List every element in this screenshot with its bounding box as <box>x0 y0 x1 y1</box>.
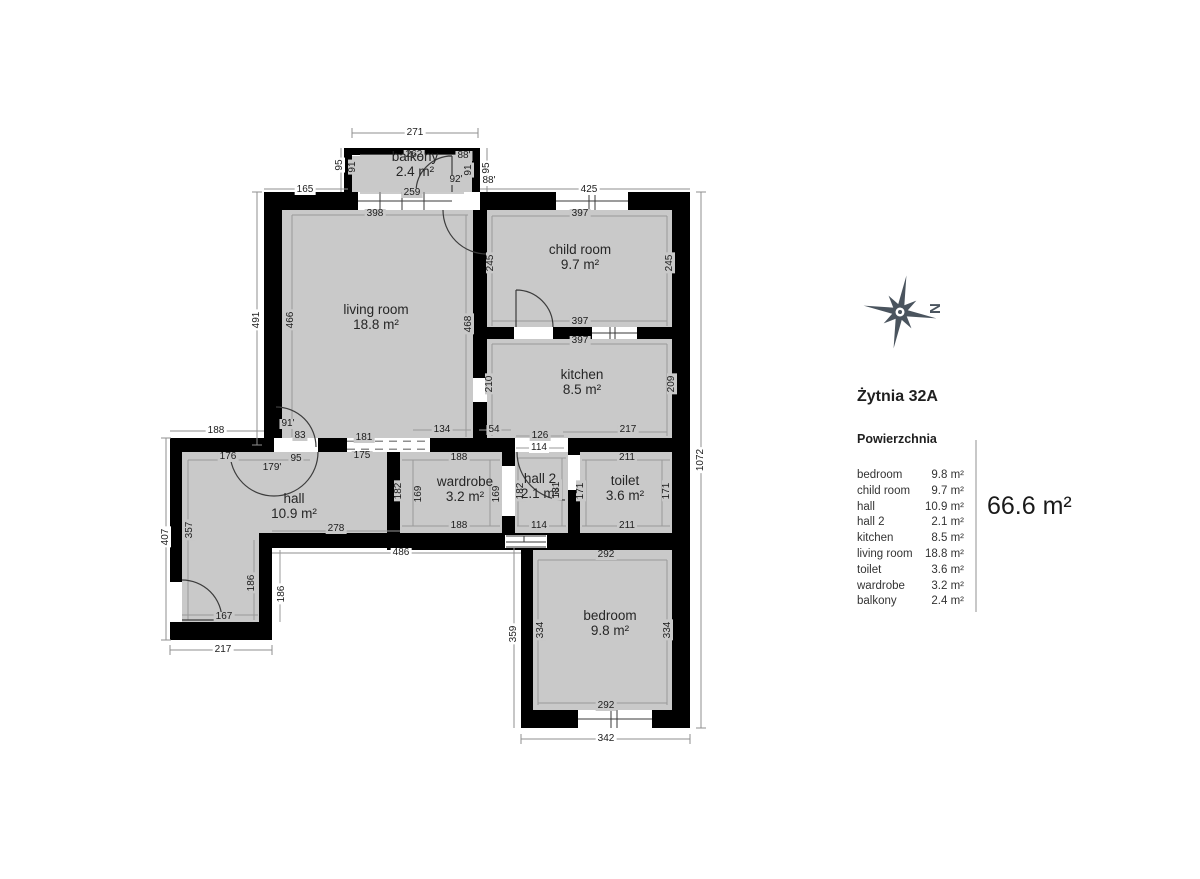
room-label: living room18.8 m² <box>343 302 408 332</box>
dimension-label: 95 <box>288 454 303 464</box>
room-area: 2.1 m² <box>521 486 559 501</box>
dimension-label: 171 <box>576 481 586 502</box>
room-name: hall 2 <box>521 471 559 486</box>
room-name: toilet <box>606 473 644 488</box>
plan-title: Żytnia 32A <box>857 388 938 406</box>
dimension-label: 95 <box>335 157 345 172</box>
legend-room-name: hall <box>857 502 875 514</box>
legend-room-name: hall 2 <box>857 517 885 529</box>
room-name: kitchen <box>561 367 604 382</box>
dimension-label: 114 <box>529 443 549 453</box>
dimension-label: 211 <box>617 521 637 531</box>
room-label: balkony2.4 m² <box>392 149 439 179</box>
door-gap-balcony <box>452 192 480 210</box>
dimension-label: 188 <box>449 453 470 463</box>
dimension-label: 278 <box>326 524 347 534</box>
legend-room-area: 18.8 m² <box>925 549 964 561</box>
room-name: child room <box>549 242 611 257</box>
legend-room-name: wardrobe <box>857 581 905 593</box>
dimension-label: 217 <box>213 645 234 655</box>
legend-divider <box>975 440 977 612</box>
legend-room-name: balkony <box>857 596 897 608</box>
dimension-label: 176 <box>218 452 239 462</box>
legend-row: hall10.9 m² <box>857 502 964 514</box>
dimension-label: 486 <box>391 548 412 558</box>
room-label: hall 22.1 m² <box>521 471 559 501</box>
room-area: 3.2 m² <box>437 489 493 504</box>
dimension-label: 114 <box>529 521 549 531</box>
dimension-label: 359 <box>509 624 519 645</box>
legend-room-area: 10.9 m² <box>925 502 964 514</box>
legend-room-name: living room <box>857 549 913 561</box>
dimension-label: 126 <box>530 431 551 441</box>
room-label: toilet3.6 m² <box>606 473 644 503</box>
legend-room-area: 2.4 m² <box>931 596 964 608</box>
dimension-label: 134 <box>432 425 453 435</box>
room-area: 18.8 m² <box>343 317 408 332</box>
total-area: 66.6 m² <box>987 492 1072 521</box>
dimension-label: 259 <box>402 188 423 198</box>
dimension-label: 468 <box>464 314 474 335</box>
room-name: wardrobe <box>437 474 493 489</box>
legend-row: living room18.8 m² <box>857 549 964 561</box>
dimension-label: 186 <box>247 573 257 594</box>
dimension-label: 292 <box>596 701 617 711</box>
dimension-label: 88' <box>455 151 472 161</box>
door-gap-child <box>514 327 553 339</box>
dimension-label: 175 <box>352 451 373 461</box>
legend-row: toilet3.6 m² <box>857 565 964 577</box>
room-area: 3.6 m² <box>606 488 644 503</box>
dimension-label: 398 <box>365 209 386 219</box>
door-gap-hall-entry <box>170 582 182 622</box>
dimension-label: 188 <box>449 521 470 531</box>
dimension-label: 271 <box>405 128 426 138</box>
dimension-label: 245 <box>486 253 496 274</box>
dimension-label: 182 <box>394 481 404 502</box>
dimension-label: 211 <box>617 453 637 463</box>
dimension-label: 466 <box>286 310 296 331</box>
legend-room-name: toilet <box>857 565 881 577</box>
dimension-label: 342 <box>596 734 617 744</box>
legend-room-area: 3.6 m² <box>931 565 964 577</box>
legend-room-name: bedroom <box>857 470 902 482</box>
room-label: wardrobe3.2 m² <box>437 474 493 504</box>
dimension-label: 88' <box>480 176 497 186</box>
legend-row: balkony2.4 m² <box>857 596 964 608</box>
dimension-label: 334 <box>536 620 546 641</box>
dimension-label: 91 <box>464 162 474 177</box>
dimension-label: 209 <box>667 374 677 395</box>
dimension-label: 292 <box>596 550 617 560</box>
dimension-label: 169 <box>492 484 502 505</box>
dimension-label: 1072 <box>696 447 706 473</box>
dimension-label: 91 <box>348 159 358 174</box>
door-gap-wardrobe <box>502 466 515 516</box>
dimension-label: 245 <box>665 253 675 274</box>
dimension-label: 397 <box>570 317 591 327</box>
legend-row: kitchen8.5 m² <box>857 533 964 545</box>
legend-row: wardrobe3.2 m² <box>857 581 964 593</box>
legend-room-area: 9.8 m² <box>931 470 964 482</box>
legend-row: hall 22.1 m² <box>857 517 964 529</box>
dimension-label: 334 <box>663 620 673 641</box>
dimension-label: 167 <box>214 612 235 622</box>
dimension-label: 181 <box>354 433 375 443</box>
dimension-label: 425 <box>579 185 600 195</box>
room-name: hall <box>271 491 317 506</box>
dimension-label: 169 <box>414 484 424 505</box>
legend-room-area: 9.7 m² <box>931 486 964 498</box>
dimension-label: 83 <box>292 431 307 441</box>
dimension-label: 397 <box>570 209 591 219</box>
dimension-label: 210 <box>485 374 495 395</box>
dimension-label: 188 <box>206 426 227 436</box>
legend-room-name: child room <box>857 486 910 498</box>
room-area: 8.5 m² <box>561 382 604 397</box>
room-name: balkony <box>392 149 439 164</box>
dimension-label: 92' <box>447 175 464 185</box>
legend-row: bedroom9.8 m² <box>857 470 964 482</box>
room-name: living room <box>343 302 408 317</box>
dimension-label: 95 <box>482 160 492 175</box>
room-label: child room9.7 m² <box>549 242 611 272</box>
dimension-label: 407 <box>161 527 171 548</box>
dimension-label: 54 <box>486 425 501 435</box>
room-area: 9.8 m² <box>583 623 636 638</box>
legend-row: child room9.7 m² <box>857 486 964 498</box>
dimension-label: 186 <box>277 584 287 605</box>
compass-north-label: N <box>926 303 943 314</box>
room-label: bedroom9.8 m² <box>583 608 636 638</box>
dimension-label: 397 <box>570 336 591 346</box>
dimension-label: 91' <box>279 419 296 429</box>
room-label: kitchen8.5 m² <box>561 367 604 397</box>
dimension-label: 357 <box>185 520 195 541</box>
legend-room-area: 8.5 m² <box>931 533 964 545</box>
legend-header: Powierzchnia <box>857 432 937 446</box>
legend-room-area: 3.2 m² <box>931 581 964 593</box>
room-area: 2.4 m² <box>392 164 439 179</box>
room-name: bedroom <box>583 608 636 623</box>
dimension-label: 491 <box>252 310 262 331</box>
floorplan-drawing <box>0 0 1200 879</box>
dimension-label: 165 <box>295 185 316 195</box>
room-area: 9.7 m² <box>549 257 611 272</box>
floorplan-page: 27126225988'92'88'9591959116542539839749… <box>0 0 1200 879</box>
legend-room-area: 2.1 m² <box>931 517 964 529</box>
legend-room-name: kitchen <box>857 533 893 545</box>
dimension-label: 171 <box>662 481 672 502</box>
room-label: hall10.9 m² <box>271 491 317 521</box>
dimension-label: 217 <box>618 425 639 435</box>
dimension-label: 179' <box>261 463 284 473</box>
room-area: 10.9 m² <box>271 506 317 521</box>
